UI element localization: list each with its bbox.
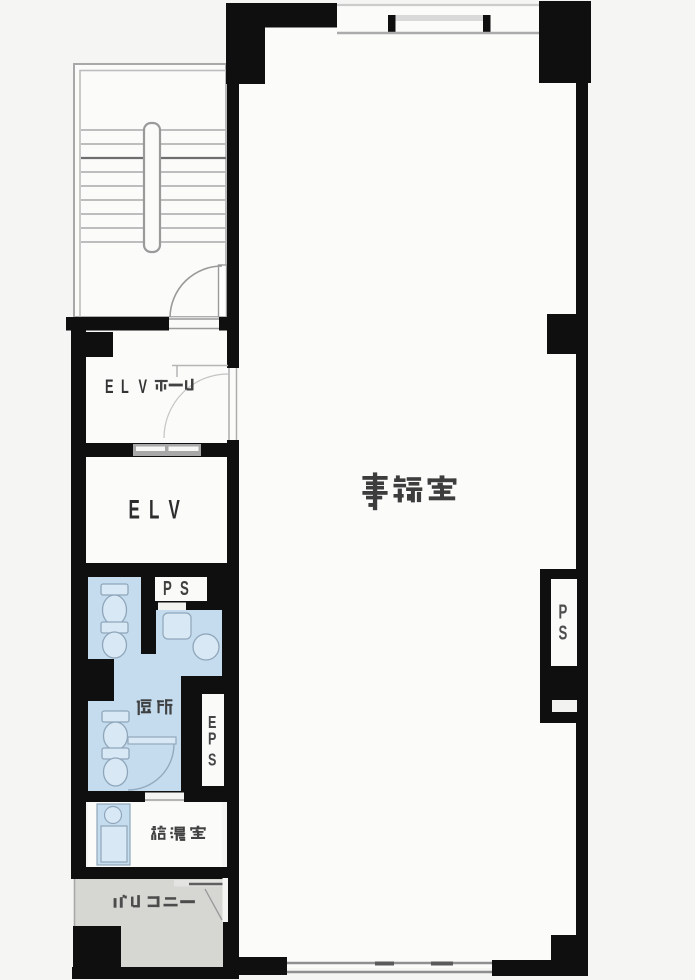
svg-text:S: S bbox=[208, 750, 216, 770]
svg-text:V: V bbox=[169, 495, 180, 525]
svg-text:L: L bbox=[121, 377, 129, 398]
svg-text:P: P bbox=[163, 577, 172, 599]
svg-text:V: V bbox=[139, 377, 148, 398]
svg-text:P: P bbox=[208, 729, 216, 749]
svg-text:P: P bbox=[559, 601, 568, 623]
svg-text:S: S bbox=[559, 622, 568, 644]
svg-text:S: S bbox=[180, 577, 189, 599]
svg-text:E: E bbox=[129, 495, 140, 525]
svg-text:E: E bbox=[105, 377, 114, 398]
svg-text:L: L bbox=[149, 495, 160, 525]
